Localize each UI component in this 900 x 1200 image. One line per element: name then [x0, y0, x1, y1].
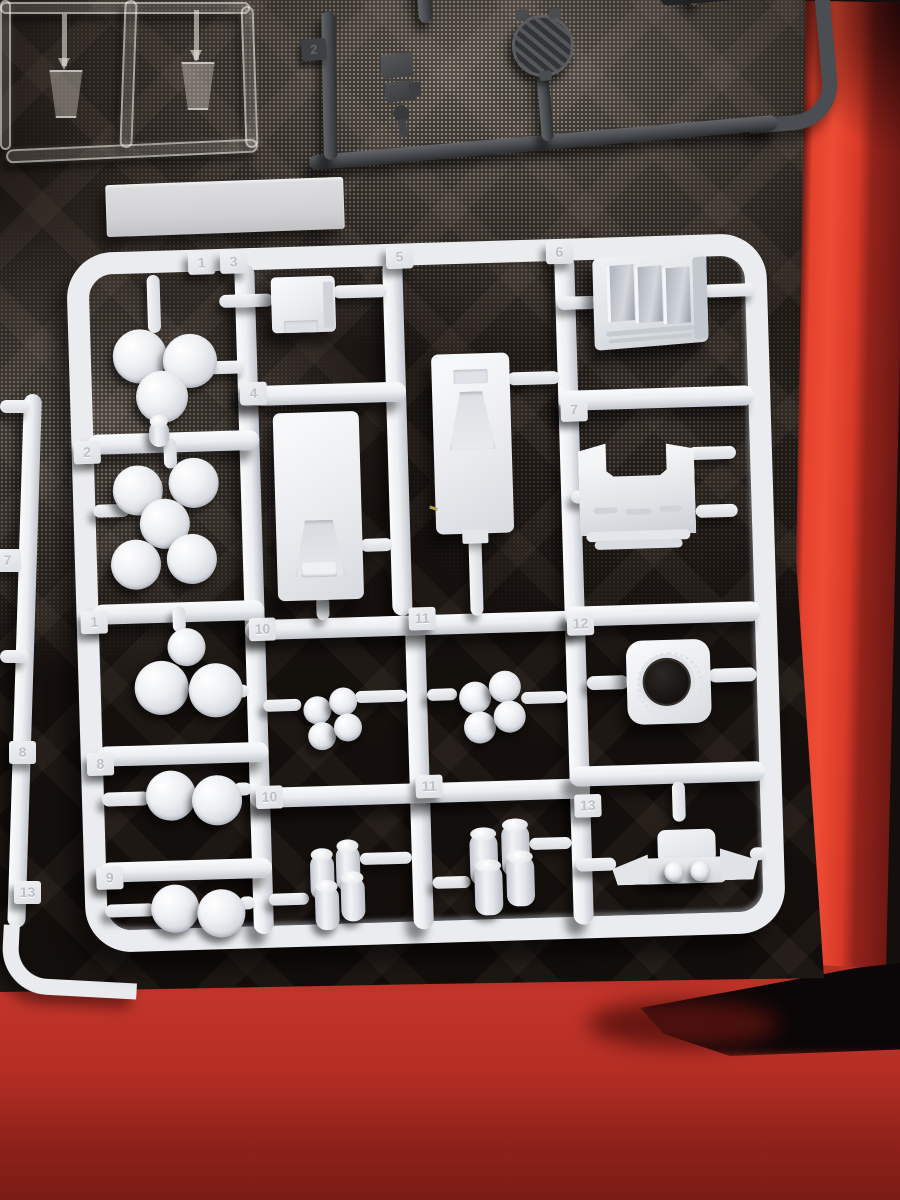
- gate-stub: [355, 690, 407, 704]
- gate-stub: [529, 837, 571, 850]
- gate-stub: [468, 533, 483, 615]
- gate-stub: [521, 691, 567, 704]
- part-tab: 7: [560, 398, 588, 422]
- part-7-cowl: [578, 441, 697, 552]
- clear-gate-tip: [190, 50, 202, 62]
- dark-rail: [415, 0, 433, 23]
- part-tab: 8: [87, 752, 115, 776]
- dark-flat-part: [657, 0, 747, 6]
- gate-stub: [587, 675, 629, 690]
- clear-gate-tip: [58, 58, 70, 70]
- gate-stub: [703, 283, 755, 298]
- white-sprue: 1 3 5 6 2 1 8 9 4 10 11 10 11 7 12 13: [66, 233, 786, 953]
- part-3-block: [271, 276, 337, 334]
- floor-shadow: [588, 1000, 778, 1048]
- gate-stub: [432, 876, 470, 889]
- dark-rail-corner: [736, 0, 841, 134]
- clear-sprue: [0, 0, 275, 175]
- part-5-tall-box: [431, 352, 514, 534]
- gate-stub: [269, 893, 309, 906]
- gate-stub: [0, 400, 30, 413]
- dark-disc-part: [509, 13, 570, 74]
- gate-stub: [688, 446, 736, 460]
- part-tab: 11: [408, 607, 436, 631]
- part-tab: 3: [220, 250, 248, 274]
- gray-strip-part: [105, 177, 345, 237]
- part-4-tall-box: [273, 411, 365, 601]
- gate-stub: [102, 791, 150, 806]
- gate-stub: [333, 284, 387, 299]
- clear-window-part: [48, 70, 84, 118]
- clear-window-part: [180, 62, 216, 110]
- part-13-front-panel: [611, 817, 759, 901]
- gate-stub: [708, 667, 756, 682]
- gate-stub: [263, 699, 301, 712]
- dark-sprue-tab: 2: [300, 38, 327, 62]
- clear-rail: [0, 0, 11, 150]
- part-tab: 1: [80, 610, 108, 634]
- part-tab: 5: [386, 245, 414, 269]
- gate-stub: [0, 650, 28, 663]
- gate-stub: [219, 293, 273, 308]
- gate-stub: [696, 504, 738, 518]
- gate-stub: [576, 857, 616, 871]
- part-tab: 11: [415, 775, 443, 799]
- photo-scene: 2 7 8 13: [0, 0, 900, 1200]
- part-tab: 13: [14, 881, 41, 904]
- gate-stub: [427, 688, 457, 701]
- part-tab: 12: [567, 612, 595, 636]
- part-6-grille: [592, 253, 709, 348]
- part-tab: 10: [249, 617, 277, 641]
- part-tab: 8: [9, 741, 36, 764]
- gate-stub: [146, 275, 161, 333]
- gate-stub: [557, 296, 597, 310]
- part-12-bored-block: [626, 639, 712, 725]
- dark-bracket-part: [380, 52, 428, 145]
- part-tab: 1: [188, 251, 216, 275]
- part-tab: 2: [73, 441, 101, 465]
- gate-stub: [507, 371, 559, 386]
- gate-stub: [360, 852, 412, 866]
- part-tab: 9: [96, 866, 124, 890]
- part-tab: 10: [256, 785, 284, 809]
- part-tab: 6: [546, 240, 574, 264]
- gate-stub: [672, 781, 686, 821]
- clear-rail: [241, 6, 259, 148]
- gate-stub: [360, 538, 392, 552]
- dark-rail: [536, 72, 554, 141]
- gate-stub: [105, 903, 155, 917]
- dark-rail: [321, 11, 338, 159]
- clear-rail: [119, 0, 137, 148]
- part-tab: 13: [574, 794, 602, 818]
- part-tab: 4: [240, 382, 268, 406]
- part-tab: 7: [0, 549, 21, 572]
